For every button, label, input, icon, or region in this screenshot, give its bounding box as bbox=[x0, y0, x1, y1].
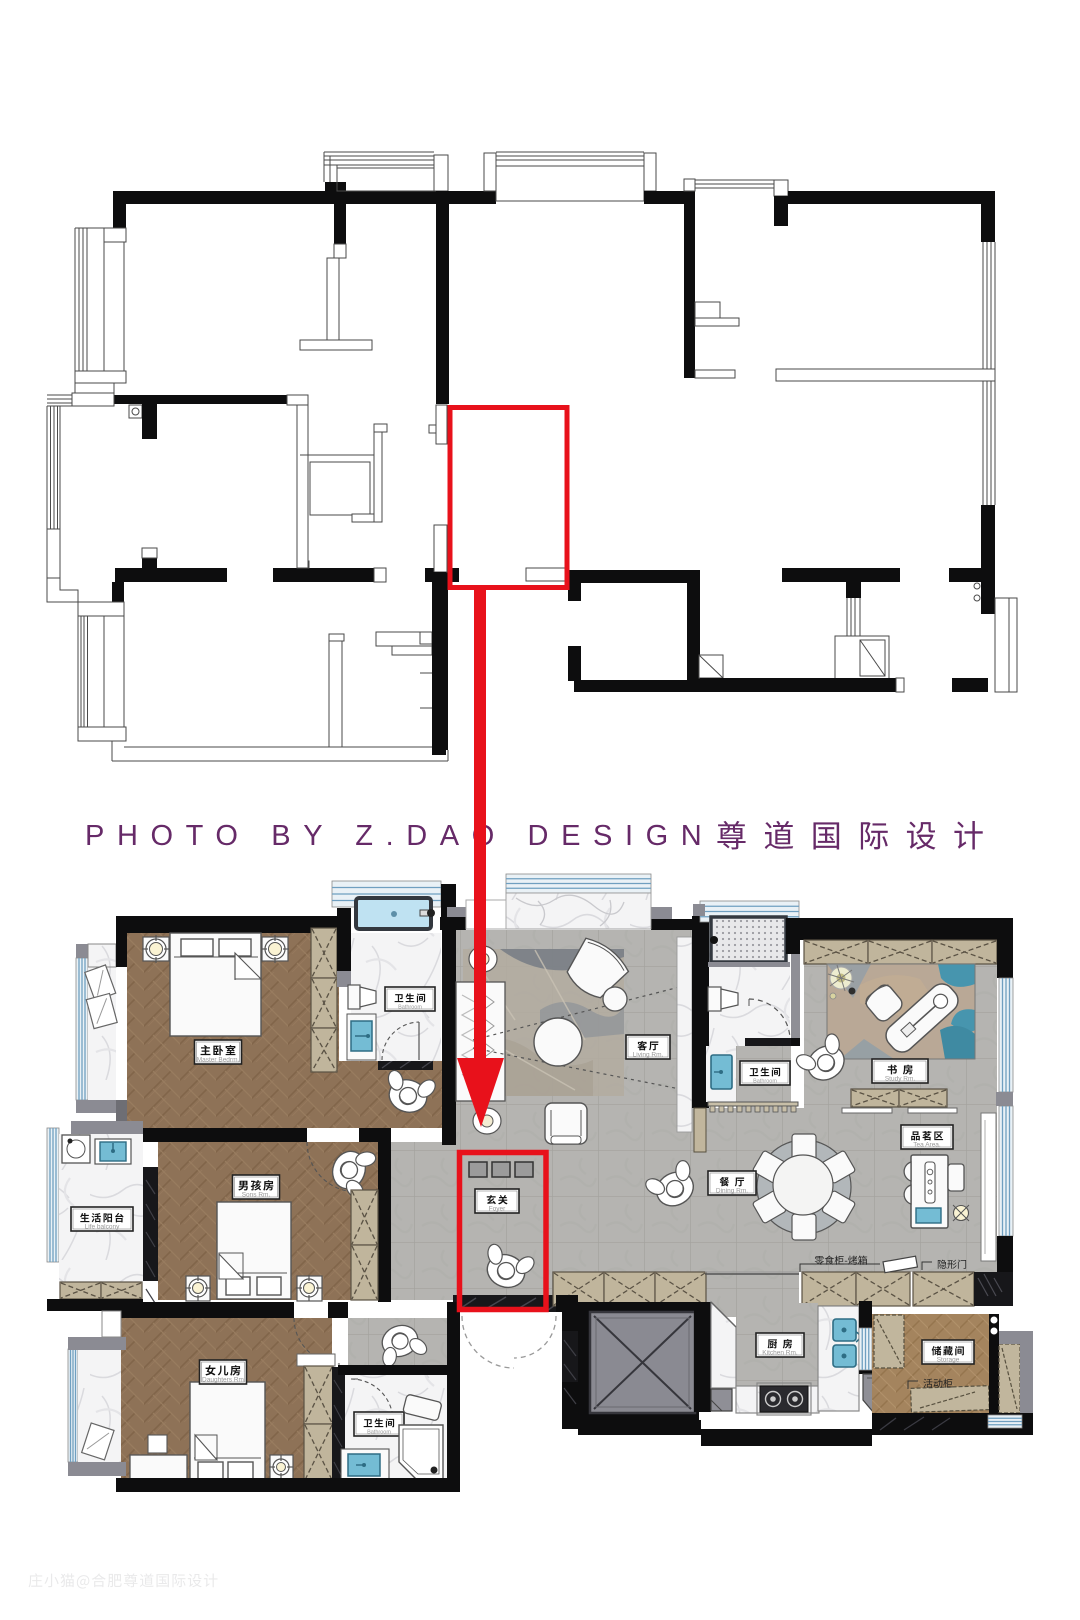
svg-text:Daughters Rm: Daughters Rm bbox=[202, 1377, 244, 1384]
svg-text:Tea Area.: Tea Area. bbox=[913, 1142, 941, 1149]
svg-text:Sons Rm.: Sons Rm. bbox=[242, 1192, 271, 1199]
svg-text:Dining Rm.: Dining Rm. bbox=[716, 1188, 748, 1195]
svg-text:Bathroom: Bathroom bbox=[753, 1079, 777, 1085]
svg-text:Master Bedrm.: Master Bedrm. bbox=[197, 1057, 240, 1064]
svg-text:Bathroom: Bathroom bbox=[398, 1005, 422, 1011]
svg-text:Foyer: Foyer bbox=[489, 1206, 506, 1213]
svg-text:Life balcony: Life balcony bbox=[85, 1224, 120, 1231]
svg-text:Storage: Storage bbox=[937, 1357, 960, 1364]
svg-text:Study Rm.: Study Rm. bbox=[885, 1076, 916, 1083]
svg-text:Bathroom: Bathroom bbox=[367, 1430, 391, 1436]
svg-text:Living Rm.: Living Rm. bbox=[633, 1052, 664, 1059]
svg-text:PHOTO BY Z.DAO DESIGN: PHOTO BY Z.DAO DESIGN bbox=[85, 820, 714, 852]
svg-text:Kitchen Rm.: Kitchen Rm. bbox=[762, 1350, 798, 1357]
